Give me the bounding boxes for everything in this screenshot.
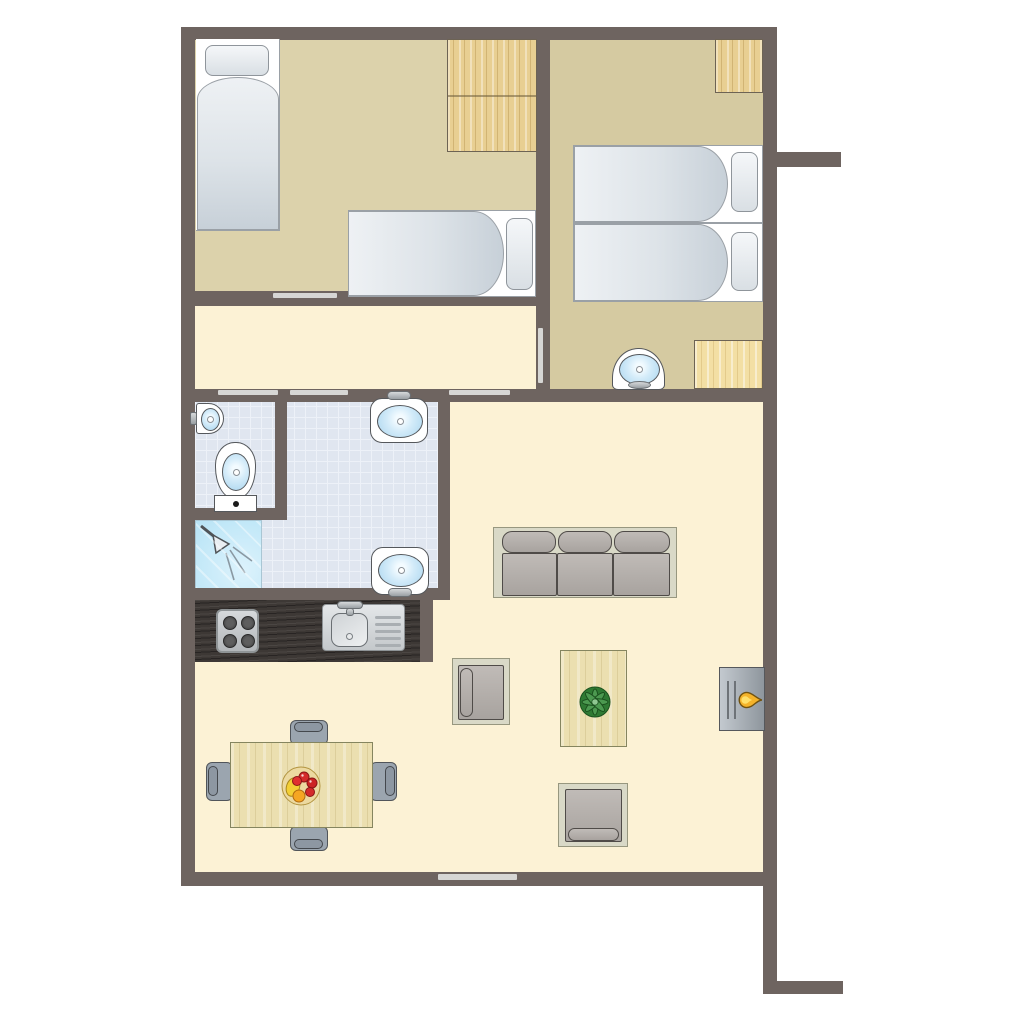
fireplace-vent-line (727, 681, 729, 719)
toilet-bowl (215, 442, 256, 499)
door-bedroom1 (273, 293, 337, 298)
plant-icon (577, 684, 613, 720)
sofa-seat (502, 553, 557, 596)
door-living-room (449, 390, 510, 395)
double-bed-duvet-top (574, 146, 728, 222)
double-bed-pillow-bottom (731, 232, 758, 291)
kitchen-faucet-spout (346, 608, 354, 616)
corner-sink-basin (201, 408, 220, 431)
wardrobe-bedroom2 (715, 39, 763, 93)
door-wc (218, 390, 278, 395)
wall-stub-bottom-right (777, 981, 843, 994)
vanity-faucet (628, 381, 651, 389)
wardrobe-bedroom1 (447, 39, 537, 152)
cabinet-bedroom2 (694, 340, 763, 389)
wall-kitchen-stub (420, 600, 433, 662)
fruit-bowl-icon (279, 764, 323, 808)
armchair-bottom-backrest (568, 828, 619, 841)
wall-bathroom-east (438, 402, 450, 600)
burner (223, 634, 237, 648)
burner (241, 634, 255, 648)
burner (223, 616, 237, 630)
floor-plan (0, 0, 1024, 1024)
drainer-line (375, 630, 401, 633)
shower (195, 520, 262, 590)
toilet-tank (214, 495, 257, 512)
door-bedroom2 (538, 328, 543, 383)
drainer-line (375, 644, 401, 647)
double-bed-duvet-bottom (574, 224, 728, 301)
wall-stub-top-right (777, 152, 841, 167)
toilet-flush-button (233, 501, 239, 507)
dining-table (230, 742, 373, 828)
kitchen-sink-unit (322, 604, 405, 651)
flame-icon (736, 686, 764, 714)
single-bed-vertical-pillow (205, 45, 269, 76)
sofa-seat (613, 553, 670, 596)
coffee-table (560, 650, 627, 747)
toilet-basin (222, 453, 250, 491)
corner-sink-faucet (190, 412, 197, 425)
bathroom-sink-bottom-basin (378, 554, 424, 587)
dining-chair-south (290, 826, 328, 851)
bathroom-sink-top-faucet (387, 391, 411, 400)
wall-left (181, 27, 195, 886)
kitchen-sink-basin (331, 613, 368, 647)
armchair-left-backrest (460, 668, 473, 717)
wall-right (763, 27, 777, 994)
armchair-bottom (558, 783, 628, 847)
shower-head-icon (198, 523, 261, 589)
wall-wc-east (275, 402, 287, 520)
fireplace (719, 667, 765, 731)
sofa-back-cushion (502, 531, 556, 553)
wardrobe-divider (448, 95, 536, 97)
drainer-line (375, 616, 401, 619)
dining-chair-east (370, 762, 397, 801)
drainer-line (375, 623, 401, 626)
bathroom-sink-top-basin (377, 405, 423, 438)
burner (241, 616, 255, 630)
sofa (493, 527, 677, 598)
single-bed-horizontal-pillow (506, 218, 533, 290)
armchair-left (452, 658, 510, 725)
sofa-back-cushion (558, 531, 612, 553)
stove-4-burner (216, 609, 259, 653)
bathroom-sink-bottom-faucet (388, 588, 412, 597)
sofa-seat (557, 553, 613, 596)
kitchen-sink-drain (346, 633, 353, 640)
double-bed-pillow-top (731, 152, 758, 212)
dining-chair-west (206, 762, 233, 801)
sofa-back-cushion (614, 531, 670, 553)
bathroom-sink-top (370, 398, 428, 443)
drainer-line (375, 637, 401, 640)
door-bathroom (290, 390, 348, 395)
single-bed-horizontal-duvet (348, 211, 504, 296)
window-south (438, 874, 517, 880)
single-bed-vertical-duvet (197, 77, 279, 230)
